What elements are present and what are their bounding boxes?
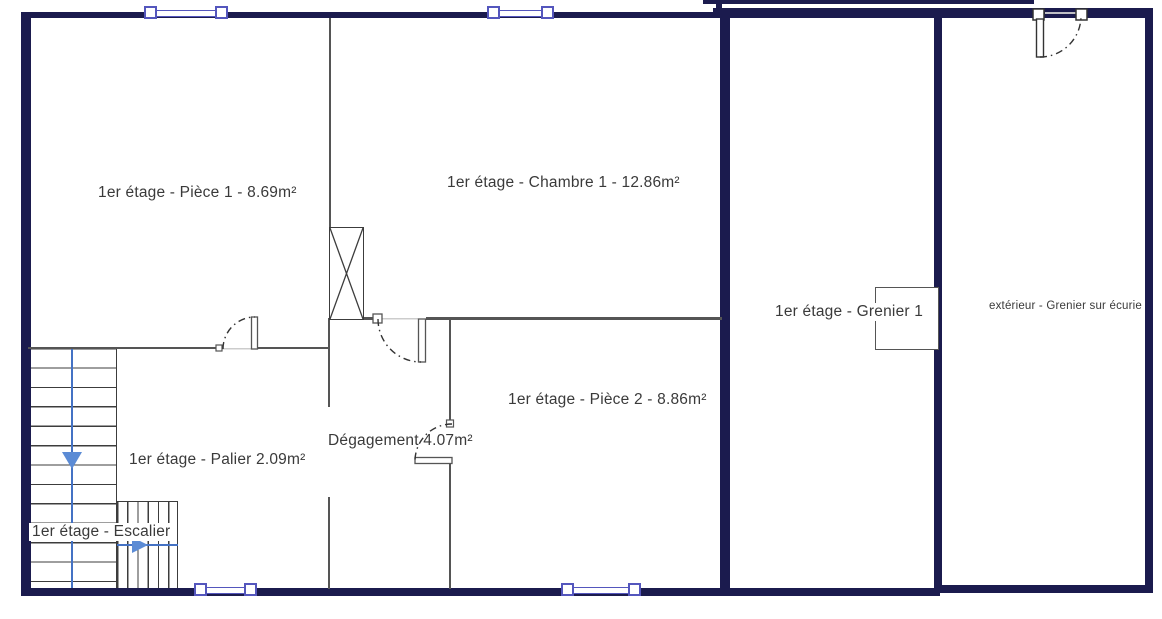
room-label-piece1: 1er étage - Pièce 1 - 8.69m² <box>95 184 300 202</box>
partition-hall-upper <box>328 318 330 407</box>
wall-left <box>21 12 31 596</box>
partition-piece2-upper <box>449 319 451 424</box>
window-top2-glazing <box>500 10 541 17</box>
door-hinge-degagement <box>373 314 382 323</box>
window-top1-square-right <box>215 6 228 19</box>
partition-mid-horizontal-b <box>426 317 722 320</box>
wall-top-right-wing <box>713 8 1153 18</box>
wall-right <box>1145 8 1153 593</box>
room-label-palier: 1er étage - Palier 2.09m² <box>126 451 308 469</box>
door-arc-degagement <box>378 319 421 362</box>
window-bottom1-square-right <box>244 583 257 596</box>
partition-piece1-chambre1 <box>329 18 331 227</box>
room-label-degagement: Dégagement 4.07m² <box>325 432 476 450</box>
stairs-down-arrow-icon <box>62 452 82 469</box>
partition-palier-b <box>257 347 330 349</box>
partition-piece2-lower <box>449 461 451 589</box>
room-label-piece2: 1er étage - Pièce 2 - 8.86m² <box>505 391 710 409</box>
room-label-grenier1: 1er étage - Grenier 1 <box>772 303 926 321</box>
wall-middle <box>720 8 730 596</box>
window-top2-square-left <box>487 6 500 19</box>
door-leaf-degagement <box>419 319 426 362</box>
window-bottom1-square-left <box>194 583 207 596</box>
wall-bottom-main <box>21 588 940 596</box>
window-bottom1-glazing <box>207 587 244 594</box>
floor-plan-canvas: 1er étage - Pièce 1 - 8.69m² 1er étage -… <box>0 0 1162 619</box>
wall-top-thin-line <box>703 0 1034 4</box>
window-top1-glazing <box>157 10 215 17</box>
partition-palier-a <box>28 347 219 349</box>
partition-hall-lower <box>328 497 330 589</box>
chimney-x-icon <box>330 228 363 319</box>
room-label-grenier-ecurie: extérieur - Grenier sur écurie <box>986 300 1145 313</box>
door-leaf-ecurie <box>1037 19 1044 57</box>
room-label-chambre1: 1er étage - Chambre 1 - 12.86m² <box>444 174 683 192</box>
wall-bottom-right-wing <box>934 585 1153 593</box>
window-bottom2-square-right <box>628 583 641 596</box>
wall-top-main <box>21 12 722 18</box>
window-top2-square-right <box>541 6 554 19</box>
chimney-duct-box <box>329 227 364 320</box>
door-arc-palier <box>223 317 255 349</box>
door-leaf-piece2 <box>415 458 452 464</box>
window-bottom2-square-left <box>561 583 574 596</box>
room-label-escalier: 1er étage - Escalier <box>29 523 173 541</box>
door-leaf-palier <box>252 317 258 349</box>
window-bottom2-glazing <box>574 587 628 594</box>
window-top1-square-left <box>144 6 157 19</box>
door-arc-ecurie <box>1040 16 1081 57</box>
